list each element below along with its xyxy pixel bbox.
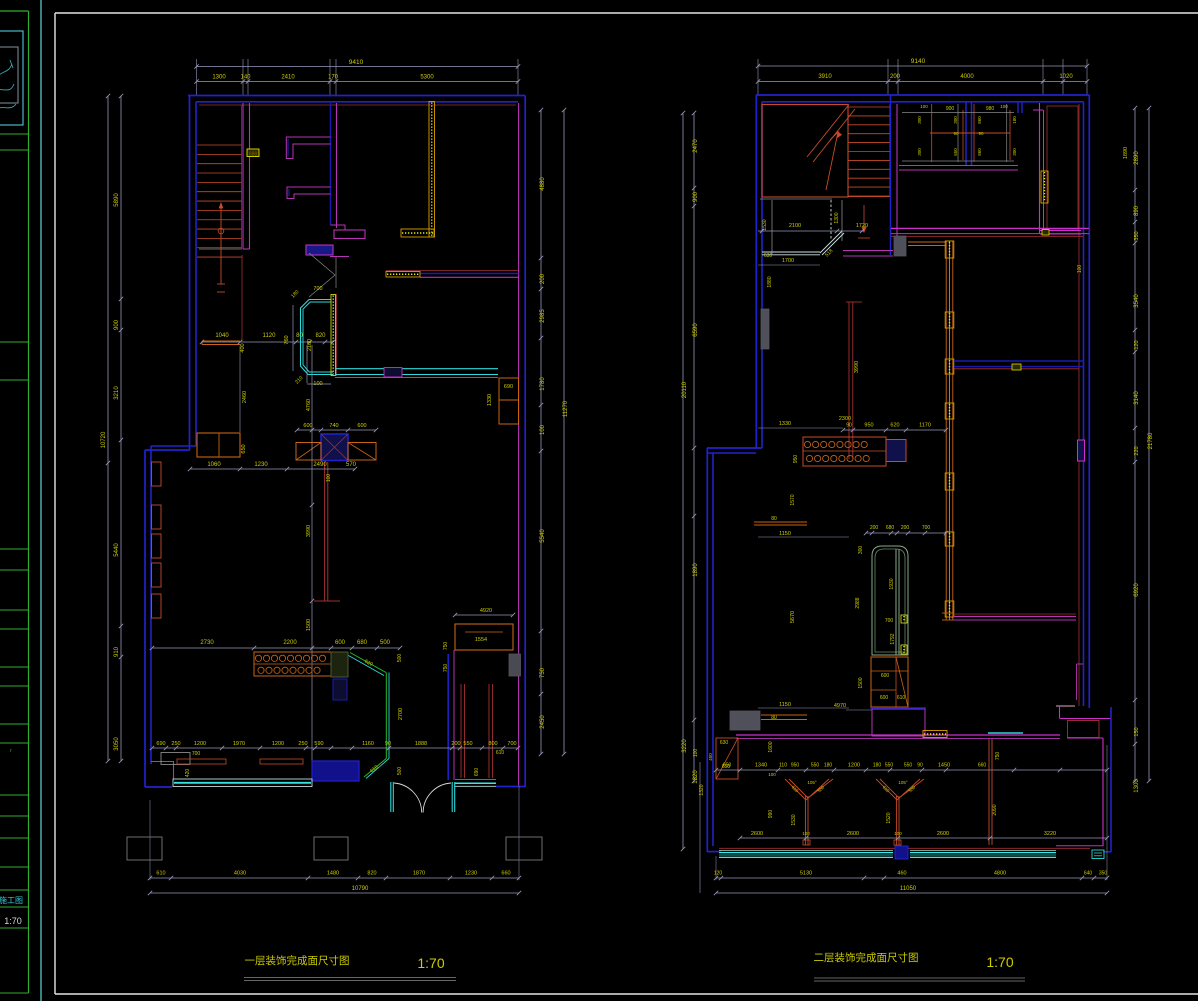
svg-text:180: 180 (1012, 116, 1017, 124)
svg-text:1530: 1530 (791, 814, 797, 825)
svg-text:5670: 5670 (790, 611, 796, 623)
svg-text:200: 200 (901, 525, 910, 531)
svg-text:610: 610 (496, 750, 505, 756)
svg-text:980: 980 (986, 106, 995, 112)
svg-text:20110: 20110 (682, 381, 688, 398)
svg-text:950: 950 (793, 455, 799, 464)
svg-text:680: 680 (357, 640, 368, 646)
svg-text:6920: 6920 (1134, 583, 1140, 597)
svg-text:650: 650 (953, 148, 958, 156)
svg-text:820: 820 (367, 871, 376, 877)
svg-text:420: 420 (185, 769, 191, 778)
svg-text:1600: 1600 (768, 741, 774, 752)
svg-text:11050: 11050 (900, 886, 917, 892)
svg-text:650: 650 (241, 444, 247, 453)
svg-text:690: 690 (474, 768, 480, 777)
svg-text:1930: 1930 (889, 578, 895, 589)
svg-text:3910: 3910 (818, 74, 832, 80)
svg-text:1500: 1500 (306, 619, 312, 631)
svg-text:4000: 4000 (960, 74, 974, 80)
svg-text:1330: 1330 (779, 421, 791, 427)
svg-text:640: 640 (1084, 871, 1093, 877)
svg-text:700: 700 (885, 618, 894, 624)
svg-text:1880: 1880 (767, 276, 773, 287)
svg-text:860: 860 (977, 148, 982, 156)
svg-text:2600: 2600 (937, 831, 949, 837)
svg-text:200: 200 (870, 525, 879, 531)
svg-text:1520: 1520 (886, 812, 892, 823)
svg-text:100: 100 (693, 749, 699, 758)
svg-text:1150: 1150 (779, 702, 791, 708)
svg-text:860: 860 (977, 116, 982, 124)
svg-text:1230: 1230 (465, 871, 477, 877)
svg-text:550: 550 (904, 763, 913, 769)
svg-text:820: 820 (315, 333, 326, 339)
svg-text:660: 660 (501, 871, 510, 877)
svg-text:800: 800 (488, 741, 497, 747)
svg-text:4970: 4970 (834, 703, 846, 709)
svg-text:3990: 3990 (306, 525, 312, 537)
svg-text:350: 350 (1134, 231, 1140, 240)
svg-text:220: 220 (1134, 446, 1140, 455)
svg-text:750: 750 (995, 752, 1001, 761)
svg-text:1320: 1320 (699, 784, 705, 795)
svg-text:2600: 2600 (847, 831, 859, 837)
svg-text:300: 300 (917, 148, 922, 156)
svg-text:4920: 4920 (480, 608, 492, 614)
svg-text:3220: 3220 (682, 739, 688, 753)
svg-text:990: 990 (768, 810, 774, 819)
svg-text:100: 100 (920, 104, 928, 109)
svg-text:450: 450 (708, 753, 713, 761)
svg-text:200: 200 (890, 74, 901, 80)
svg-text:1300: 1300 (1134, 779, 1140, 793)
svg-text:140: 140 (240, 75, 251, 81)
svg-text:570: 570 (346, 462, 357, 468)
svg-text:1570: 1570 (790, 494, 796, 505)
svg-text:750: 750 (443, 642, 449, 651)
svg-text:1:70: 1:70 (986, 954, 1013, 970)
svg-text:1:70: 1:70 (417, 955, 444, 971)
svg-text:100: 100 (1077, 265, 1083, 274)
svg-text:700: 700 (192, 751, 201, 757)
svg-text:100: 100 (1000, 104, 1008, 109)
svg-text:650: 650 (723, 763, 732, 769)
svg-text:2200: 2200 (283, 640, 297, 646)
svg-text:1060: 1060 (207, 462, 221, 468)
svg-text:1450: 1450 (938, 763, 950, 769)
svg-text:180: 180 (873, 763, 882, 769)
svg-text:1970: 1970 (233, 741, 245, 747)
svg-text:630: 630 (720, 740, 729, 746)
svg-text:700: 700 (507, 741, 516, 747)
svg-text:1170: 1170 (919, 423, 931, 429)
svg-text:2090: 2090 (992, 804, 998, 815)
svg-text:2100: 2100 (789, 223, 801, 229)
svg-text:3050: 3050 (114, 737, 120, 751)
svg-text:550: 550 (811, 763, 820, 769)
svg-text:80: 80 (771, 516, 777, 522)
svg-text:80: 80 (771, 715, 777, 721)
svg-text:1200: 1200 (194, 741, 206, 747)
svg-text:500: 500 (397, 767, 403, 776)
svg-text:1200: 1200 (848, 763, 860, 769)
svg-text:3220: 3220 (1044, 831, 1056, 837)
svg-text:2460: 2460 (242, 391, 248, 403)
svg-text:700: 700 (922, 525, 931, 531)
svg-text:600: 600 (303, 423, 312, 429)
svg-text:620: 620 (890, 423, 899, 429)
svg-text:660: 660 (978, 763, 987, 769)
svg-text:1150: 1150 (779, 531, 791, 537)
svg-text:1720: 1720 (856, 223, 868, 229)
svg-text:600: 600 (880, 695, 889, 701)
svg-text:1200: 1200 (272, 741, 284, 747)
svg-text:888: 888 (249, 152, 258, 158)
svg-text:2700: 2700 (398, 708, 404, 720)
svg-text:170: 170 (328, 75, 339, 81)
svg-text:300: 300 (917, 116, 922, 124)
svg-text:10720: 10720 (101, 431, 107, 448)
svg-text:1890: 1890 (1123, 147, 1129, 159)
svg-text:2490: 2490 (313, 462, 327, 468)
svg-text:80: 80 (296, 333, 303, 339)
svg-text:550: 550 (463, 741, 472, 747)
svg-text:100: 100 (326, 474, 332, 483)
svg-text:350: 350 (1099, 871, 1108, 877)
svg-text:4800: 4800 (994, 871, 1006, 877)
svg-text:100: 100 (768, 772, 776, 777)
svg-text:180: 180 (824, 763, 833, 769)
svg-text:3140: 3140 (1134, 391, 1140, 405)
svg-text:900: 900 (946, 106, 955, 112)
svg-text:3990: 3990 (854, 361, 860, 373)
svg-text:5540: 5540 (540, 529, 546, 543)
svg-text:100: 100 (894, 831, 902, 836)
svg-text:2730: 2730 (200, 640, 214, 646)
svg-text:750: 750 (540, 667, 546, 678)
svg-text:610: 610 (897, 695, 906, 701)
svg-text:5300: 5300 (420, 75, 434, 81)
svg-text:10790: 10790 (352, 886, 369, 892)
svg-text:1020: 1020 (1059, 74, 1073, 80)
svg-text:1554: 1554 (475, 637, 487, 643)
svg-text:250: 250 (298, 741, 307, 747)
svg-text:1330: 1330 (487, 394, 493, 406)
svg-text:610: 610 (156, 871, 165, 877)
svg-text:21780: 21780 (1148, 432, 1154, 449)
svg-text:1120: 1120 (263, 333, 277, 339)
svg-text:2988: 2988 (855, 597, 861, 608)
svg-text:500: 500 (380, 640, 391, 646)
svg-text:910: 910 (114, 646, 120, 657)
svg-text:5130: 5130 (800, 871, 812, 877)
svg-text:1780: 1780 (540, 377, 546, 391)
svg-text:1160: 1160 (362, 741, 374, 747)
svg-text:90: 90 (917, 763, 923, 769)
svg-text:600: 600 (881, 673, 890, 679)
svg-text:2985: 2985 (540, 309, 546, 323)
svg-text:1040: 1040 (215, 333, 229, 339)
svg-text:1700: 1700 (782, 258, 794, 264)
svg-text:4030: 4030 (234, 871, 246, 877)
svg-text:5440: 5440 (114, 543, 120, 557)
svg-text:100: 100 (540, 424, 546, 435)
svg-text:600: 600 (357, 423, 366, 429)
svg-text:2450: 2450 (540, 715, 546, 729)
svg-text:300: 300 (1012, 148, 1017, 156)
svg-text:1888: 1888 (415, 741, 427, 747)
svg-text:2410: 2410 (281, 75, 295, 81)
svg-text:150: 150 (1134, 727, 1140, 736)
svg-text:90: 90 (978, 131, 984, 136)
svg-text:2890: 2890 (1134, 151, 1140, 165)
svg-text:9410: 9410 (349, 59, 364, 66)
svg-text:1480: 1480 (327, 871, 339, 877)
svg-text:4760: 4760 (306, 399, 312, 411)
svg-text:680: 680 (886, 525, 895, 531)
svg-text:9140: 9140 (911, 58, 926, 65)
svg-text:300: 300 (858, 546, 864, 555)
svg-text:施工图: 施工图 (0, 895, 23, 905)
svg-text:1890: 1890 (693, 563, 699, 577)
svg-text:1300: 1300 (212, 75, 226, 81)
svg-text:11270: 11270 (563, 400, 569, 417)
svg-text:3540: 3540 (1134, 294, 1140, 308)
svg-text:630: 630 (764, 253, 773, 259)
svg-text:105°: 105° (807, 780, 817, 785)
svg-text:1870: 1870 (413, 871, 425, 877)
svg-text:90: 90 (385, 741, 391, 747)
svg-text:900: 900 (693, 191, 699, 202)
svg-text:5890: 5890 (114, 193, 120, 207)
svg-text:250: 250 (171, 741, 180, 747)
svg-text:90: 90 (846, 423, 852, 429)
svg-text:890: 890 (1134, 205, 1140, 216)
svg-text:105°: 105° (898, 780, 908, 785)
svg-text:1300: 1300 (834, 212, 840, 223)
svg-text:400: 400 (240, 343, 246, 352)
svg-text:6590: 6590 (693, 323, 699, 337)
svg-text:600: 600 (335, 640, 346, 646)
svg-text:460: 460 (897, 871, 906, 877)
svg-text:950: 950 (864, 423, 873, 429)
svg-text:3210: 3210 (114, 386, 120, 400)
svg-text:690: 690 (156, 741, 165, 747)
svg-text:1230: 1230 (254, 462, 268, 468)
svg-text:690: 690 (504, 384, 513, 390)
svg-text:4880: 4880 (540, 177, 546, 191)
svg-text:100: 100 (802, 831, 810, 836)
svg-text:1792: 1792 (890, 633, 896, 644)
svg-text:90: 90 (953, 131, 959, 136)
svg-text:900: 900 (114, 319, 120, 330)
svg-text:120: 120 (1134, 340, 1140, 349)
svg-text:2600: 2600 (751, 831, 763, 837)
svg-text:一层装饰完成面尺寸图: 一层装饰完成面尺寸图 (245, 954, 350, 967)
svg-text:590: 590 (314, 741, 323, 747)
svg-text:700: 700 (313, 286, 322, 292)
svg-text:550: 550 (885, 763, 894, 769)
svg-text:2300: 2300 (839, 416, 851, 422)
svg-text:760: 760 (284, 335, 290, 344)
svg-text:200: 200 (451, 741, 460, 747)
svg-text:740: 740 (329, 423, 338, 429)
svg-text:300: 300 (953, 116, 958, 124)
svg-text:1320: 1320 (693, 770, 699, 784)
svg-text:1340: 1340 (755, 763, 767, 769)
svg-text:1530: 1530 (762, 219, 768, 230)
svg-text:200: 200 (540, 273, 546, 284)
svg-text:1500: 1500 (858, 677, 864, 688)
svg-text:110: 110 (779, 763, 787, 769)
svg-text:1:70: 1:70 (4, 916, 22, 926)
svg-text:120: 120 (714, 871, 723, 877)
svg-text:500: 500 (397, 654, 403, 663)
svg-text:950: 950 (791, 763, 800, 769)
svg-text:2470: 2470 (693, 139, 699, 153)
svg-text:二层装饰完成面尺寸图: 二层装饰完成面尺寸图 (814, 951, 919, 964)
